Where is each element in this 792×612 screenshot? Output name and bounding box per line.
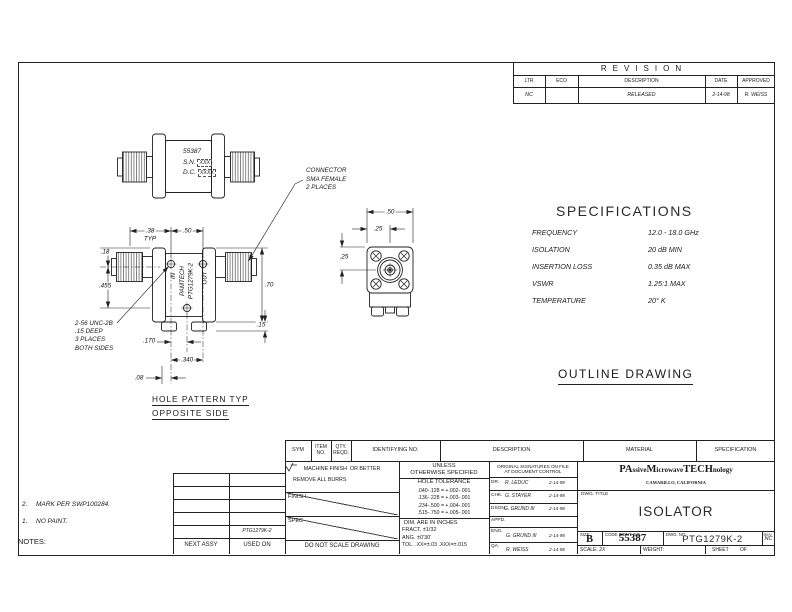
remove-burrs-label: REMOVE ALL BURRS [293, 477, 346, 484]
machine-finish-row: MACHINE FINISH OR BETTER [285, 463, 399, 475]
hole-pattern-caption-line2: OPPOSITE SIDE [152, 408, 229, 420]
scale-value: 2X [599, 547, 605, 553]
unless-line1: UNLESS [432, 463, 455, 470]
hole-tolerance-row: .040-.128 = +.002-.001 [399, 488, 489, 495]
sig-name-qa: R. WEISS [506, 547, 529, 553]
dc-value-box: XXXX [198, 169, 216, 177]
sig-date-dsgn: 2-14-98 [549, 506, 565, 512]
weight-label: WEIGHT: [643, 547, 664, 553]
sheet-of-label: OF [740, 547, 747, 553]
company-name-part: ssive [632, 466, 646, 475]
parts-header-identifying-no: IDENTIFYING NO. [351, 440, 440, 461]
dim-170: .170 [142, 338, 156, 345]
sig-role-dr: DR. [491, 480, 499, 486]
angle-tolerance-line: ANG. ±0'30' [402, 535, 431, 542]
sn-label: S.N. [183, 159, 196, 166]
dwg-no-value: PTG1279K-2 [663, 534, 762, 545]
drawing-title: ISOLATOR [577, 497, 775, 527]
spec-value-isolation: 20 dB MIN [648, 245, 682, 254]
sig-role-qa: QA. [491, 544, 499, 550]
top-view-serial-line: S.N. XXX [183, 158, 216, 169]
used-on-value: PTG1279K-2 [229, 525, 285, 538]
divider [513, 103, 775, 104]
company-name-part: M [646, 463, 656, 476]
sn-value-box: XXX [197, 159, 212, 167]
signatures-header-line2: AT DOCUMENT CONTROL [505, 469, 562, 474]
sig-date-qa: 2-14-98 [549, 547, 565, 553]
company-name-part: PA [619, 463, 632, 476]
screw-note-line: 2-56 UNC-2B [75, 320, 113, 328]
sig-name-chk: G. STAYER [505, 493, 531, 499]
dim-end-50: .50 [385, 209, 396, 216]
parts-header-item-line2: NO. [317, 451, 326, 457]
callout-line: CONNECTOR [306, 167, 346, 176]
unless-otherwise-specified: UNLESS OTHERWISE SPECIFIED [399, 461, 489, 478]
dim-50: .50 [182, 228, 193, 235]
revision-header-eco: ECO [545, 75, 578, 87]
top-view-datecode-line: D.C. XXXX [183, 168, 216, 179]
hole-pattern-caption-line1: HOLE PATTERN TYP [152, 394, 249, 406]
sig-role-chk: CHK. [491, 493, 502, 499]
dim-end-25h: .25 [373, 226, 384, 233]
hole-tolerance-row: .234-.500 = +.004-.001 [399, 503, 489, 510]
fract-tolerance-line: FRACT. ±1/32 [402, 527, 437, 534]
or-better-label: OR BETTER [350, 466, 380, 473]
screw-note-line: 3 PLACES [75, 336, 113, 344]
parts-header-item-no: ITEM NO. [311, 440, 331, 461]
note-1-number: 1. [22, 518, 27, 526]
parts-header-specification: SPECIFICATION [696, 440, 775, 461]
note-1-text: NO PAINT. [36, 518, 67, 526]
do-not-scale-label: DO NOT SCALE DRAWING [285, 540, 399, 554]
company-name-part: nology [713, 466, 733, 475]
scale-row: SCALE: 2X [580, 547, 605, 553]
signatures-header: ORIGINAL SIGNATURES ON FILE AT DOCUMENT … [489, 462, 577, 476]
revision-row-date: 2-14-98 [705, 87, 737, 103]
sig-role-appd: APPD. [491, 518, 505, 524]
sig-name-dr: R. LEDUC [505, 480, 528, 486]
note-2-number: 2. [22, 501, 27, 509]
callout-line: 2 PLACES [306, 184, 346, 193]
sig-name-dsgn: G. GRUND III [504, 506, 535, 512]
revision-row-eco [545, 87, 578, 103]
parts-header-description: DESCRIPTION [440, 440, 583, 461]
revision-header-ltr: LTR [513, 75, 545, 87]
company-city: CAMARILLO, CALIFORNIA [577, 478, 775, 487]
revision-header-date: DATE [705, 75, 737, 87]
sig-date-eng: 2-14-98 [549, 533, 565, 539]
connector-callout: CONNECTOR SMA FEMALE 2 PLACES [306, 167, 346, 193]
company-name-part: TECH [683, 463, 713, 476]
rev-value: NC [762, 534, 775, 545]
dim-typ: TYP [143, 236, 157, 243]
surface-finish-icon [285, 463, 297, 472]
dim-38: .38 [145, 228, 156, 235]
dim-end-25v: .25 [339, 254, 350, 261]
spec-diagonal [287, 517, 398, 539]
dim-08: .08 [134, 375, 145, 382]
parts-header-sym: SYM [285, 440, 311, 461]
dim-70: .70 [264, 282, 275, 289]
spec-value-insertion-loss: 0.35 dB MAX [648, 262, 690, 271]
dim-inches-line: DIM. ARE IN INCHES [404, 520, 457, 527]
parts-header-qty-line2: REQD. [333, 451, 349, 457]
outline-drawing-label: OUTLINE DRAWING [558, 367, 693, 385]
spec-value-frequency: 12.0 - 18.0 GHz [648, 228, 699, 237]
hole-tolerance-title: HOLE TOLERANCE [399, 479, 489, 487]
spec-label-insertion-loss: INSERTION LOSS [532, 262, 592, 271]
screw-note-line: .15 DEEP [75, 328, 113, 336]
dim-15: .15 [256, 322, 267, 329]
screw-note-line: BOTH SIDES [75, 345, 113, 353]
spec-value-vswr: 1.25:1 MAX [648, 279, 686, 288]
company-name-part: icrowave [656, 466, 683, 475]
top-view-markings: 55387 S.N. XXX D.C. XXXX [183, 147, 216, 179]
revision-header-approved: APPROVED [737, 75, 775, 87]
dc-label: D.C. [183, 169, 196, 176]
sheet-label: SHEET [712, 547, 729, 553]
sig-role-eng: ENG. [491, 529, 503, 535]
spec-label-frequency: FREQUENCY [532, 228, 577, 237]
revision-row-ltr: NC [513, 87, 545, 103]
sig-date-dr: 2-14-98 [549, 480, 565, 486]
hole-tolerance-row: .136-.228 = +.003-.001 [399, 495, 489, 502]
unless-line2: OTHERWISE SPECIFIED [410, 470, 477, 477]
used-on-header: USED ON [229, 538, 285, 554]
drawing-sheet: IN PAMTECH PTG1279K-2 OUT [0, 0, 792, 612]
dim-340: .340 [180, 357, 194, 364]
revision-row-description: RELEASED [578, 87, 705, 103]
scale-label: SCALE: [580, 547, 598, 553]
revision-title: REVISION [513, 62, 775, 75]
size-value: B [577, 534, 602, 545]
sig-date-chk: 2-14-98 [549, 493, 565, 499]
spec-label-vswr: VSWR [532, 279, 554, 288]
next-assy-header: NEXT ASSY [173, 538, 229, 554]
hole-tolerance-row: .515-.750 = +.005-.001 [399, 510, 489, 517]
dim-455: .455 [98, 283, 112, 290]
screw-thread-note: 2-56 UNC-2B .15 DEEP 3 PLACES BOTH SIDES [75, 320, 113, 353]
finish-diagonal [287, 493, 398, 515]
spec-value-temperature: 20° K [648, 296, 666, 305]
code-ident-value: 55387 [602, 533, 663, 545]
specifications-title: SPECIFICATIONS [556, 203, 693, 221]
dim-18: .18 [100, 249, 111, 256]
revision-header-description: DESCRIPTION [578, 75, 705, 87]
note-2-text: MARK PER SWP100284. [36, 501, 110, 509]
callout-line: SMA FEMALE [306, 176, 346, 185]
top-view-part-number: 55387 [183, 147, 216, 158]
sig-name-eng: G. GRUND III [506, 533, 537, 539]
spec-label-temperature: TEMPERATURE [532, 296, 586, 305]
decimal-tolerance-line: TOL. .XX=±.03 .XXX=±.015 [402, 542, 467, 549]
machine-finish-label: MACHINE FINISH [304, 466, 347, 473]
notes-label: NOTES: [18, 537, 46, 546]
company-name: PA ssive M icrowave TECH nology [577, 463, 775, 476]
revision-row-approved: R. WEISS [737, 87, 775, 103]
spec-label-isolation: ISOLATION [532, 245, 570, 254]
parts-header-material: MATERIAL [583, 440, 696, 461]
parts-header-qty-reqd: QTY. REQD. [331, 440, 351, 461]
